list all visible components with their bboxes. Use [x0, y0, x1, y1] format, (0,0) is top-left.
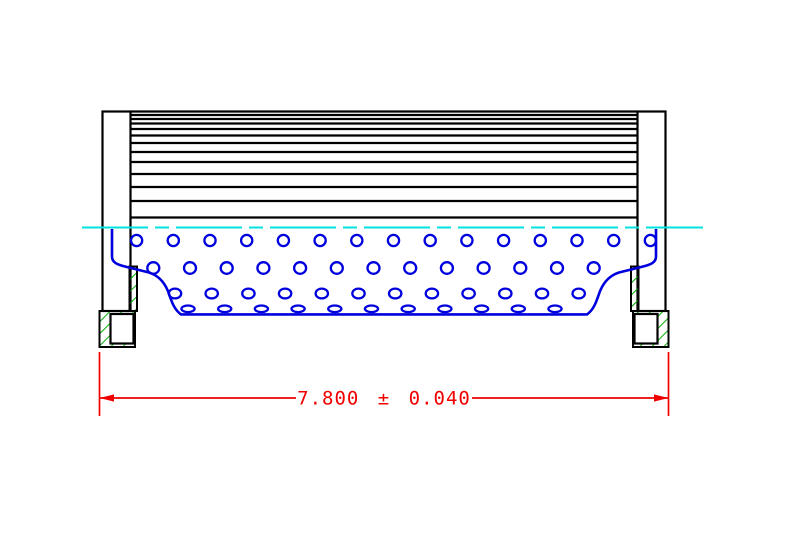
perforation-hole: [278, 235, 289, 246]
media-pack-seal-left: [130, 267, 138, 312]
gasket-left-groove: [111, 314, 134, 344]
perforation-hole: [462, 289, 474, 299]
perforation-hole: [315, 235, 326, 246]
perforation-hole: [242, 289, 254, 299]
perforation-hole: [279, 289, 291, 299]
perforation-hole: [498, 235, 509, 246]
perforation-hole: [536, 289, 548, 299]
media-pack-seal-right: [631, 267, 639, 312]
perforation-hole: [389, 289, 401, 299]
perforation-hole: [204, 235, 215, 246]
right-end-cap: [638, 112, 666, 312]
perforation-hole: [368, 262, 380, 274]
perforation-hole: [351, 235, 362, 246]
dimension-arrow-right: [654, 394, 669, 401]
perforation-hole: [352, 289, 364, 299]
perforation-hole: [512, 306, 525, 313]
dimension-annotation: 7.800 ± 0.040: [100, 352, 669, 416]
perforation-hole: [292, 306, 305, 313]
perforation-hole: [316, 289, 328, 299]
perforation-hole: [608, 235, 619, 246]
perforation-hole: [478, 262, 490, 274]
perforation-hole: [331, 262, 343, 274]
perforation-hole: [184, 262, 196, 274]
perforation-hole: [573, 289, 585, 299]
perforation-hole: [588, 262, 600, 274]
perforation-hole: [551, 262, 563, 274]
perforation-hole: [514, 262, 526, 274]
perforation-holes: [131, 235, 656, 312]
perforation-hole: [206, 289, 218, 299]
perforation-hole: [169, 289, 181, 299]
perforation-hole: [181, 306, 194, 313]
perforation-hole: [147, 262, 159, 274]
perforation-hole: [438, 306, 451, 313]
perforation-hole: [328, 306, 341, 313]
gasket-right-groove: [635, 314, 658, 344]
left-end-cap: [103, 112, 131, 312]
perforation-hole: [257, 262, 269, 274]
perforation-hole: [255, 306, 268, 313]
technical-drawing: 7.800 ± 0.040: [0, 0, 789, 546]
perforation-hole: [475, 306, 488, 313]
perforation-hole: [571, 235, 582, 246]
perforation-hole: [365, 306, 378, 313]
perforation-hole: [221, 262, 233, 274]
perforation-hole: [426, 289, 438, 299]
perforation-hole: [168, 235, 179, 246]
perforation-hole: [548, 306, 561, 313]
dimension-arrow-left: [100, 394, 115, 401]
perforation-hole: [388, 235, 399, 246]
dimension-label: 7.800 ± 0.040: [297, 388, 471, 410]
perforation-hole: [404, 262, 416, 274]
perforation-hole: [131, 235, 142, 246]
perforation-hole: [535, 235, 546, 246]
perforation-hole: [461, 235, 472, 246]
perforation-hole: [218, 306, 231, 313]
perforation-hole: [402, 306, 415, 313]
cad-drawing-canvas: 7.800 ± 0.040: [0, 0, 789, 546]
perforation-hole: [499, 289, 511, 299]
perforation-hole: [241, 235, 252, 246]
perforation-hole: [294, 262, 306, 274]
perforation-hole: [425, 235, 436, 246]
perforation-hole: [441, 262, 453, 274]
pleated-media-lines: [131, 112, 638, 218]
